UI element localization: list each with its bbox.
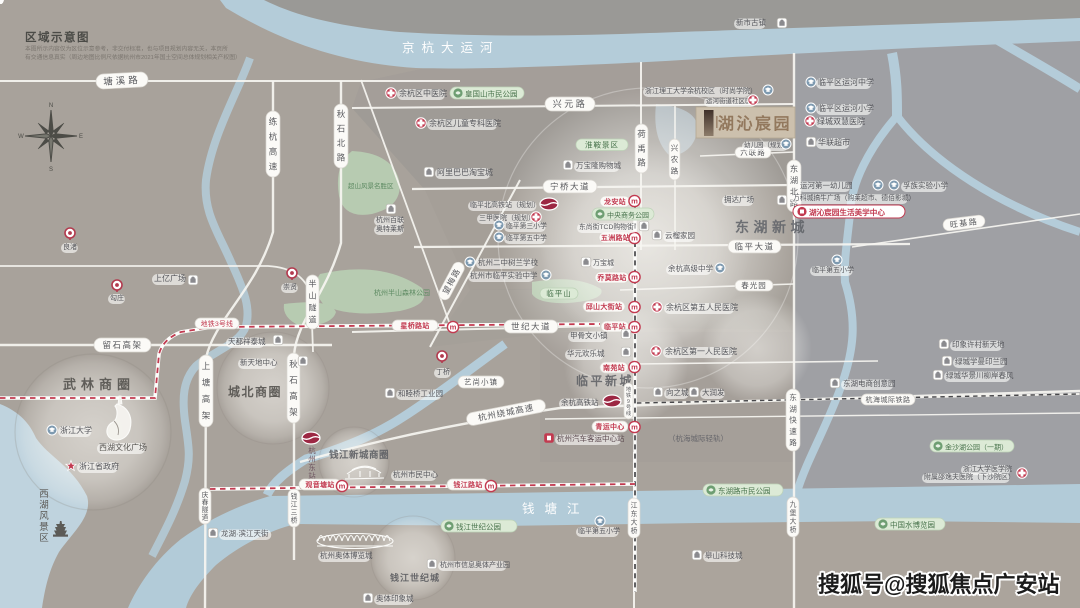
svg-text:城北商圈: 城北商圈 bbox=[228, 384, 282, 399]
svg-text:余杭区儿童专科医院: 余杭区儿童专科医院 bbox=[429, 118, 501, 128]
svg-text:新天地中心: 新天地中心 bbox=[240, 357, 278, 367]
svg-text:杭州半山森林公园: 杭州半山森林公园 bbox=[374, 288, 430, 297]
svg-text:春: 春 bbox=[202, 498, 209, 507]
svg-text:金沙湖公园（一期）: 金沙湖公园（一期） bbox=[945, 443, 1008, 452]
svg-text:西湖文化广场: 西湖文化广场 bbox=[99, 442, 147, 452]
svg-text:余杭区第五人民医院: 余杭区第五人民医院 bbox=[666, 302, 738, 312]
svg-text:临平第五小学: 临平第五小学 bbox=[812, 265, 854, 274]
svg-text:m: m bbox=[631, 423, 638, 432]
svg-text:杭州百联: 杭州百联 bbox=[376, 215, 404, 224]
svg-text:桥: 桥 bbox=[631, 526, 638, 535]
svg-text:湖: 湖 bbox=[790, 176, 798, 185]
svg-text:东: 东 bbox=[308, 462, 316, 472]
svg-text:m: m bbox=[488, 482, 495, 491]
svg-text:钱江世纪城: 钱江世纪城 bbox=[390, 572, 440, 583]
svg-text:铁: 铁 bbox=[626, 391, 631, 399]
svg-text:钱江新城商圈: 钱江新城商圈 bbox=[329, 449, 389, 461]
svg-text:勾庄: 勾庄 bbox=[110, 293, 124, 302]
svg-text:临平大道: 临平大道 bbox=[734, 242, 774, 252]
svg-text:华联超市: 华联超市 bbox=[818, 137, 850, 147]
svg-text:三甲医院（规划）: 三甲医院（规划） bbox=[479, 213, 535, 222]
svg-text:临平第三小学: 临平第三小学 bbox=[506, 221, 547, 230]
svg-text:运河第一幼儿园: 运河第一幼儿园 bbox=[800, 180, 853, 190]
svg-text:有交通信息真实（周边地图比例尺依据杭州市2021年国土空间总: 有交通信息真实（周边地图比例尺依据杭州市2021年国土空间总体规划相关产权图） bbox=[25, 53, 241, 61]
svg-text:崇贤: 崇贤 bbox=[283, 282, 297, 291]
svg-text:临平山: 临平山 bbox=[546, 288, 572, 298]
svg-text:钱江世纪公园: 钱江世纪公园 bbox=[456, 522, 501, 532]
svg-text:龙安站: 龙安站 bbox=[603, 197, 626, 206]
svg-text:东湖路市民公园: 东湖路市民公园 bbox=[718, 486, 771, 496]
svg-text:半: 半 bbox=[309, 279, 317, 289]
svg-text:星桥路站: 星桥路站 bbox=[400, 321, 429, 330]
svg-text:杭州汽车客运中心站: 杭州汽车客运中心站 bbox=[557, 433, 625, 443]
svg-text:拥达广场: 拥达广场 bbox=[724, 194, 754, 204]
svg-text:桥: 桥 bbox=[790, 525, 797, 534]
svg-text:号: 号 bbox=[626, 404, 631, 411]
svg-text:塘: 塘 bbox=[202, 378, 211, 388]
svg-text:丁桥: 丁桥 bbox=[436, 367, 450, 376]
svg-text:m: m bbox=[450, 323, 457, 332]
svg-text:速: 速 bbox=[789, 427, 797, 436]
svg-text:新市古镇: 新市古镇 bbox=[736, 17, 766, 27]
svg-text:向之城: 向之城 bbox=[666, 387, 689, 397]
svg-text:西: 西 bbox=[39, 489, 49, 500]
svg-text:杭州市临平实验中学: 杭州市临平实验中学 bbox=[470, 270, 538, 280]
svg-text:隧: 隧 bbox=[202, 505, 209, 514]
svg-text:N: N bbox=[49, 103, 53, 109]
svg-text:绿城双慧医院: 绿城双慧医院 bbox=[817, 116, 865, 126]
svg-text:湖: 湖 bbox=[39, 500, 49, 511]
svg-text:架: 架 bbox=[289, 407, 298, 417]
svg-text:皋山科技城: 皋山科技城 bbox=[705, 550, 743, 560]
svg-text:临平北高铁站（规划）: 临平北高铁站（规划） bbox=[470, 200, 540, 209]
svg-text:钱塘江: 钱塘江 bbox=[522, 501, 590, 516]
svg-text:道: 道 bbox=[202, 513, 209, 522]
svg-text:本图所示内容仅为区位示意参考，非交付标准，也与项目规划内容无: 本图所示内容仅为区位示意参考，非交付标准，也与项目规划内容无关，本页所 bbox=[25, 45, 228, 53]
svg-text:区: 区 bbox=[39, 533, 49, 544]
svg-text:余杭高级中学: 余杭高级中学 bbox=[668, 263, 713, 273]
svg-text:高: 高 bbox=[289, 391, 298, 401]
svg-text:石: 石 bbox=[289, 375, 298, 385]
svg-text:南苑站: 南苑站 bbox=[603, 363, 625, 372]
svg-text:上: 上 bbox=[202, 361, 211, 371]
svg-text:乔莫路站: 乔莫路站 bbox=[596, 273, 626, 282]
svg-text:路: 路 bbox=[637, 158, 646, 168]
svg-text:江: 江 bbox=[631, 502, 638, 510]
svg-text:绿城学曼印兰园: 绿城学曼印兰园 bbox=[955, 356, 1008, 366]
svg-text:青运中心: 青运中心 bbox=[595, 422, 624, 431]
svg-text:中央商务公园: 中央商务公园 bbox=[607, 211, 649, 220]
svg-text:快: 快 bbox=[789, 415, 797, 425]
svg-text:云榴家园: 云榴家园 bbox=[665, 230, 695, 240]
svg-text:禹: 禹 bbox=[637, 143, 646, 153]
svg-text:风: 风 bbox=[39, 511, 49, 522]
svg-text:架: 架 bbox=[202, 411, 211, 421]
svg-text:练: 练 bbox=[269, 116, 278, 126]
svg-text:临平第五中学: 临平第五中学 bbox=[506, 233, 547, 242]
svg-text:隧: 隧 bbox=[309, 303, 317, 313]
svg-text:景: 景 bbox=[39, 522, 49, 533]
svg-text:宁桥大道: 宁桥大道 bbox=[550, 182, 590, 192]
svg-text:m: m bbox=[631, 197, 638, 206]
svg-text:邱山大街站: 邱山大街站 bbox=[586, 302, 623, 311]
svg-text:路: 路 bbox=[337, 153, 346, 163]
svg-text:东: 东 bbox=[789, 392, 797, 402]
svg-text:阿里巴巴淘宝城: 阿里巴巴淘宝城 bbox=[437, 167, 493, 177]
svg-text:塘溪路: 塘溪路 bbox=[103, 74, 141, 88]
svg-text:（杭海城际轻轨）: （杭海城际轻轨） bbox=[668, 433, 728, 443]
svg-text:m: m bbox=[631, 363, 638, 372]
svg-text:龙湖·滨江天街: 龙湖·滨江天街 bbox=[221, 528, 269, 538]
svg-text:钱: 钱 bbox=[291, 491, 298, 500]
svg-text:绿城华景川柳岸春风: 绿城华景川柳岸春风 bbox=[946, 370, 1014, 380]
svg-text:三: 三 bbox=[291, 508, 298, 516]
svg-text:杭: 杭 bbox=[308, 445, 316, 455]
svg-text:庆: 庆 bbox=[202, 490, 209, 499]
svg-text:杭州奥体博览城: 杭州奥体博览城 bbox=[320, 550, 373, 560]
svg-text:浙江大学: 浙江大学 bbox=[60, 425, 92, 435]
svg-text:华元欢乐城: 华元欢乐城 bbox=[567, 348, 605, 358]
svg-text:钱江路站: 钱江路站 bbox=[452, 480, 482, 489]
svg-text:速: 速 bbox=[269, 161, 278, 171]
svg-text:兴: 兴 bbox=[671, 143, 679, 152]
svg-text:农: 农 bbox=[671, 154, 679, 164]
svg-text:兴元路: 兴元路 bbox=[553, 98, 588, 109]
svg-text:杭州市民中心: 杭州市民中心 bbox=[393, 469, 438, 479]
svg-text:东湖新城: 东湖新城 bbox=[735, 219, 809, 235]
svg-text:余杭区中医院: 余杭区中医院 bbox=[399, 88, 447, 98]
svg-text:甲骨文小镇: 甲骨文小镇 bbox=[570, 330, 608, 340]
svg-text:超山风景名胜区: 超山风景名胜区 bbox=[348, 181, 394, 190]
svg-text:E: E bbox=[79, 134, 83, 140]
svg-text:地: 地 bbox=[626, 385, 631, 393]
svg-text:东尚街TCD购物街: 东尚街TCD购物街 bbox=[579, 222, 634, 231]
svg-text:路: 路 bbox=[789, 437, 797, 447]
svg-text:皇国山市民公园: 皇国山市民公园 bbox=[465, 89, 518, 99]
svg-text:留石高架: 留石高架 bbox=[102, 340, 142, 350]
svg-text:万宝城: 万宝城 bbox=[593, 258, 614, 267]
svg-text:桥: 桥 bbox=[291, 515, 298, 524]
svg-text:杭州二中树兰学校: 杭州二中树兰学校 bbox=[478, 257, 538, 267]
svg-text:临平区运河中学: 临平区运河中学 bbox=[818, 77, 874, 87]
svg-text:万科城搞牛广场（购莱超市、德佰影城）: 万科城搞牛广场（购莱超市、德佰影城） bbox=[793, 193, 915, 202]
svg-text:天都祥泰城: 天都祥泰城 bbox=[228, 336, 266, 346]
svg-text:大润发: 大润发 bbox=[702, 387, 725, 397]
svg-text:石: 石 bbox=[337, 124, 346, 134]
svg-text:浙江大学医学院: 浙江大学医学院 bbox=[963, 464, 1012, 473]
svg-text:奥特莱斯: 奥特莱斯 bbox=[376, 224, 404, 233]
svg-text:荷: 荷 bbox=[637, 129, 646, 139]
svg-text:杭海城际铁路: 杭海城际铁路 bbox=[866, 395, 911, 404]
svg-text:京杭大运河: 京杭大运河 bbox=[402, 40, 500, 55]
svg-text:世纪大道: 世纪大道 bbox=[511, 322, 551, 332]
svg-text:高: 高 bbox=[269, 146, 278, 156]
svg-text:和睦桥工业园: 和睦桥工业园 bbox=[398, 388, 443, 398]
svg-text:东湖电商创意园: 东湖电商创意园 bbox=[843, 378, 896, 388]
svg-text:秋: 秋 bbox=[289, 359, 298, 369]
svg-text:东: 东 bbox=[790, 164, 798, 174]
svg-text:湖沁宸园: 湖沁宸园 bbox=[718, 114, 792, 133]
svg-text:大: 大 bbox=[631, 518, 638, 527]
svg-text:江: 江 bbox=[291, 500, 298, 508]
svg-text:m: m bbox=[631, 303, 638, 312]
svg-text:中国水博览园: 中国水博览园 bbox=[890, 520, 935, 530]
svg-text:孚族实验小学: 孚族实验小学 bbox=[903, 180, 948, 190]
svg-text:五洲路站: 五洲路站 bbox=[601, 233, 630, 242]
svg-text:路: 路 bbox=[671, 166, 679, 176]
svg-text:山: 山 bbox=[309, 291, 317, 301]
svg-text:m: m bbox=[631, 273, 638, 282]
svg-text:高: 高 bbox=[202, 394, 211, 404]
svg-text:地铁3号线: 地铁3号线 bbox=[201, 319, 233, 328]
svg-text:堡: 堡 bbox=[790, 508, 797, 517]
svg-text:良渚: 良渚 bbox=[63, 242, 77, 251]
svg-text:奥体印象城: 奥体印象城 bbox=[376, 593, 414, 603]
svg-text:大: 大 bbox=[790, 517, 797, 526]
svg-text:淮鞍景区: 淮鞍景区 bbox=[585, 139, 619, 149]
svg-text:九: 九 bbox=[790, 500, 797, 509]
svg-text:北: 北 bbox=[337, 138, 346, 148]
svg-text:附属邵逸夫医院（下沙院区）: 附属邵逸夫医院（下沙院区） bbox=[924, 472, 1015, 481]
svg-text:印象许村新天地: 印象许村新天地 bbox=[952, 339, 1005, 349]
svg-text:道: 道 bbox=[309, 315, 317, 325]
svg-text:观音塘站: 观音塘站 bbox=[305, 480, 334, 489]
svg-text:W: W bbox=[18, 134, 24, 140]
svg-text:m: m bbox=[631, 234, 638, 243]
svg-text:m: m bbox=[339, 482, 346, 491]
svg-text:艺尚小镇: 艺尚小镇 bbox=[464, 377, 498, 387]
svg-text:浙江理工大学余杭校区（时尚学院）: 浙江理工大学余杭校区（时尚学院） bbox=[645, 86, 757, 95]
svg-text:m: m bbox=[631, 323, 638, 332]
svg-text:上亿广场: 上亿广场 bbox=[154, 273, 186, 283]
svg-text:春光园: 春光园 bbox=[741, 280, 767, 290]
svg-text:临平区运河小学: 临平区运河小学 bbox=[818, 103, 874, 113]
svg-text:东: 东 bbox=[631, 509, 638, 518]
svg-text:武林商圈: 武林商圈 bbox=[63, 377, 135, 392]
svg-text:湖沁宸园生活美学中心: 湖沁宸园生活美学中心 bbox=[809, 207, 885, 217]
svg-text:线: 线 bbox=[626, 409, 631, 417]
svg-text:万宝隆购物城: 万宝隆购物城 bbox=[576, 160, 621, 170]
svg-text:湖: 湖 bbox=[789, 404, 797, 413]
svg-text:杭州市信息奥体产业园: 杭州市信息奥体产业园 bbox=[440, 560, 510, 569]
svg-text:余杭高铁站: 余杭高铁站 bbox=[561, 397, 599, 407]
svg-text:临平第五小学: 临平第五小学 bbox=[578, 526, 620, 535]
svg-text:区域示意图: 区域示意图 bbox=[25, 30, 90, 44]
svg-text:杭: 杭 bbox=[269, 131, 278, 141]
svg-text:秋: 秋 bbox=[337, 109, 346, 119]
svg-text:余杭区第一人民医院: 余杭区第一人民医院 bbox=[665, 346, 737, 356]
svg-text:浙江省政府: 浙江省政府 bbox=[79, 461, 119, 471]
svg-text:S: S bbox=[49, 167, 53, 173]
